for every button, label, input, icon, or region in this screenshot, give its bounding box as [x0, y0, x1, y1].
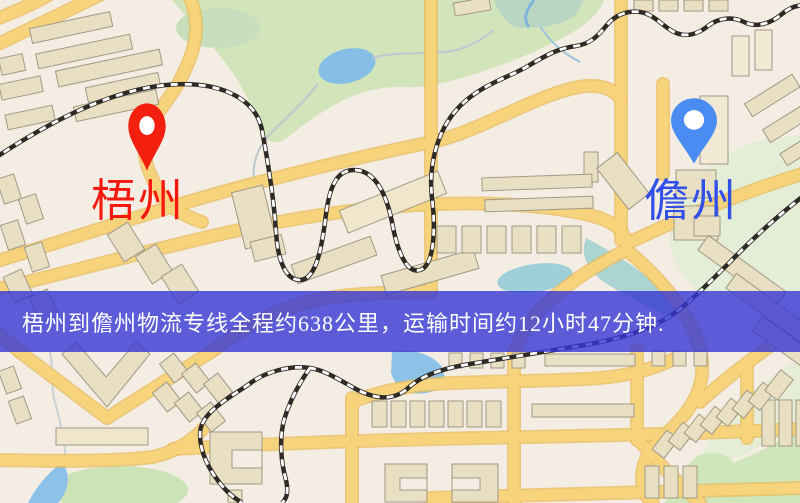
- origin-label: 梧州: [91, 179, 185, 224]
- origin-pin-icon: [125, 102, 169, 172]
- map-image: 梧州 儋州 梧州到儋州物流专线全程约638公里，运输时间约12小时47分钟.: [0, 0, 800, 503]
- destination-marker: [667, 97, 721, 165]
- destination-pin-icon: [667, 97, 721, 165]
- route-banner: 梧州到儋州物流专线全程约638公里，运输时间约12小时47分钟.: [0, 291, 800, 352]
- origin-marker: [125, 102, 169, 172]
- map-background: [0, 0, 800, 503]
- route-banner-text: 梧州到儋州物流专线全程约638公里，运输时间约12小时47分钟.: [0, 306, 665, 338]
- destination-label: 儋州: [644, 179, 738, 224]
